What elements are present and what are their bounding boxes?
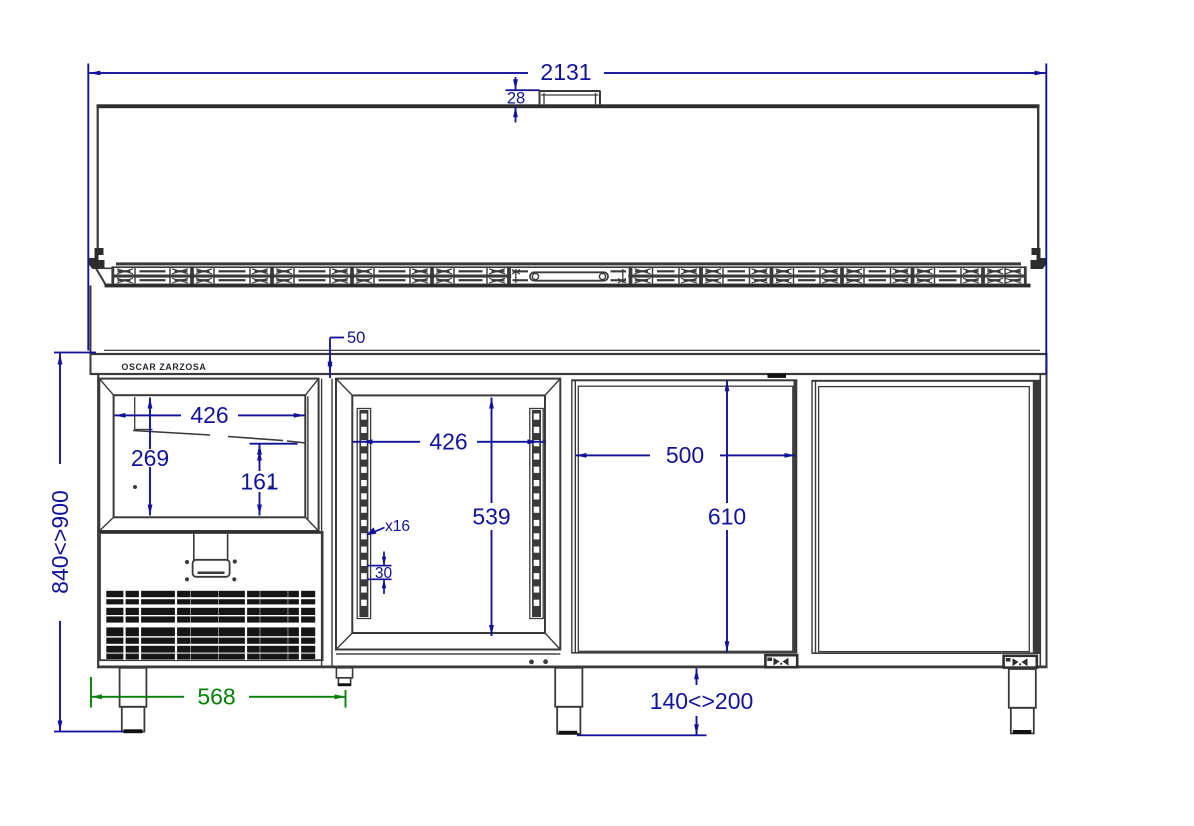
svg-text:539: 539: [472, 503, 510, 529]
svg-text:610: 610: [708, 503, 746, 529]
svg-text:161: 161: [240, 469, 278, 495]
svg-text:30: 30: [375, 565, 393, 582]
svg-text:OSCAR ZARZOSA: OSCAR ZARZOSA: [122, 362, 207, 372]
svg-text:500: 500: [666, 442, 704, 468]
svg-text:x16: x16: [385, 518, 410, 535]
svg-text:28: 28: [507, 90, 525, 108]
svg-text:568: 568: [197, 683, 235, 709]
svg-text:2131: 2131: [540, 59, 591, 85]
svg-text:426: 426: [429, 428, 467, 454]
svg-text:269: 269: [131, 445, 169, 471]
svg-text:140<>200: 140<>200: [650, 688, 754, 714]
svg-text:840<>900: 840<>900: [47, 490, 73, 594]
svg-text:426: 426: [190, 402, 228, 428]
svg-text:50: 50: [347, 329, 365, 347]
